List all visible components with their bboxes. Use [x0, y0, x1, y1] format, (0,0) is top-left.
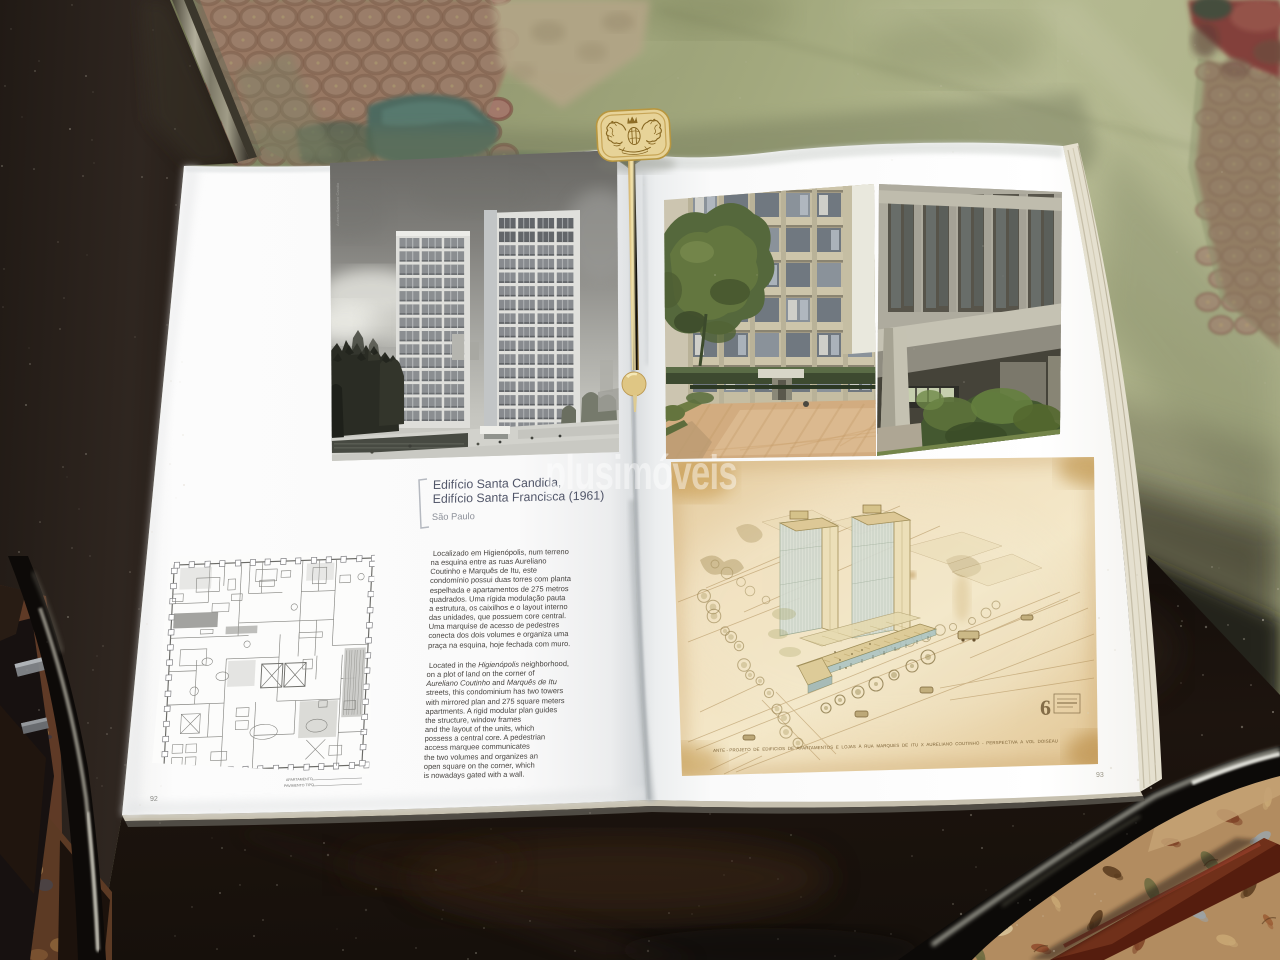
- svg-text:Acervo Salvador Candia: Acervo Salvador Candia: [335, 182, 340, 226]
- svg-text:6: 6: [1040, 695, 1051, 720]
